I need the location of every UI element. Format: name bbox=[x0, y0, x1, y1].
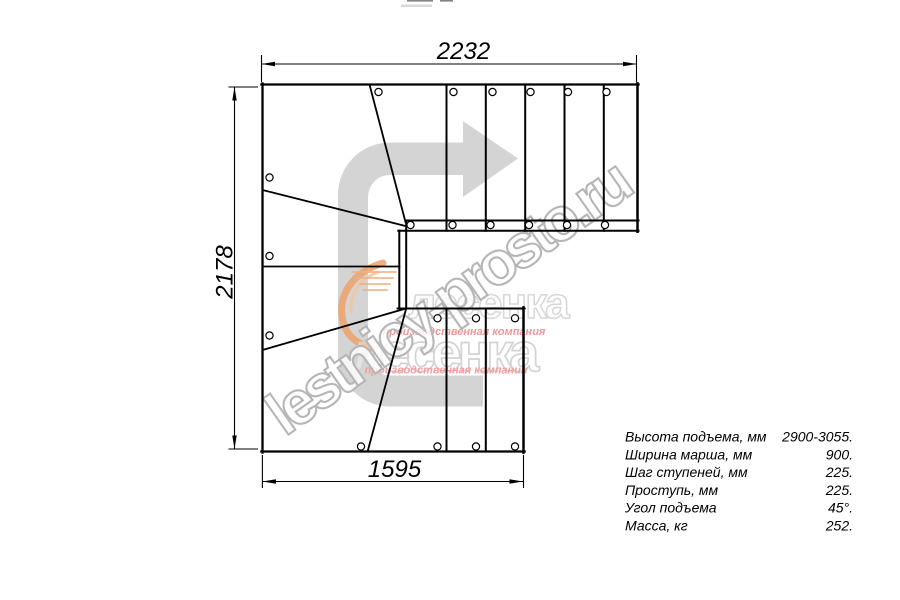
svg-text:45°.: 45°. bbox=[828, 500, 853, 516]
svg-text:2232: 2232 bbox=[436, 38, 490, 65]
svg-text:225.: 225. bbox=[825, 482, 853, 498]
svg-text:252.: 252. bbox=[825, 518, 853, 534]
svg-text:Высота подъема, мм: Высота подъема, мм bbox=[625, 429, 767, 445]
svg-text:2900-3055.: 2900-3055. bbox=[781, 429, 853, 445]
svg-text:1595: 1595 bbox=[368, 456, 422, 483]
svg-text:Шаг ступеней, мм: Шаг ступеней, мм bbox=[625, 464, 748, 480]
svg-text:900.: 900. bbox=[826, 447, 853, 463]
svg-text:Угол подъема: Угол подъема bbox=[624, 500, 717, 516]
svg-text:Масса, кг: Масса, кг bbox=[625, 518, 688, 534]
svg-text:Ширина марша, мм: Ширина марша, мм bbox=[625, 447, 753, 463]
svg-text:2178: 2178 bbox=[212, 245, 239, 300]
svg-text:Проступь, мм: Проступь, мм bbox=[625, 482, 719, 498]
svg-text:225.: 225. bbox=[825, 464, 853, 480]
